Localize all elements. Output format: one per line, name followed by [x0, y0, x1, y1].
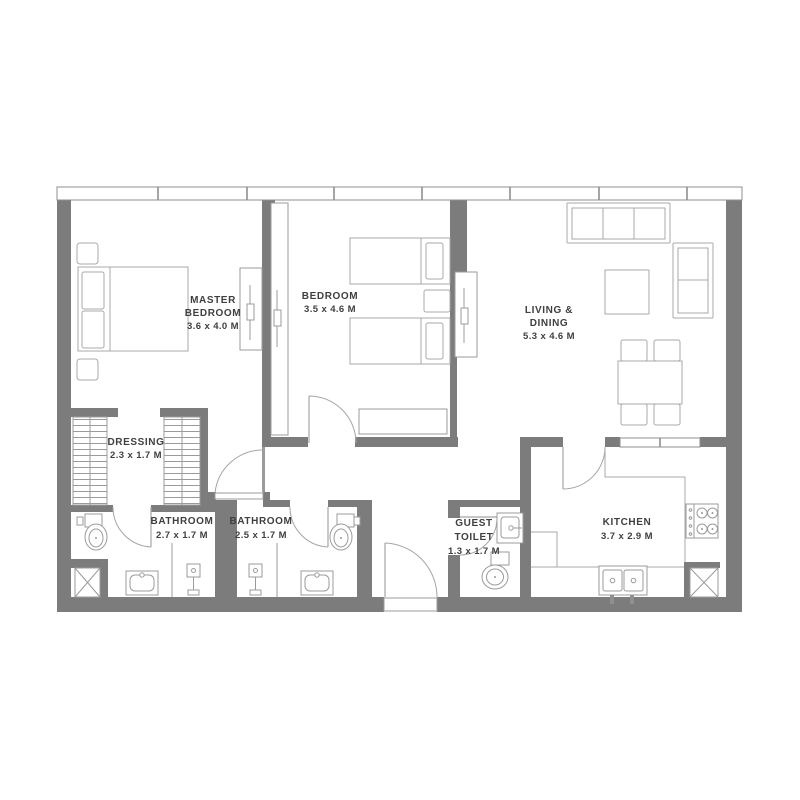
- guest-toilet-label-2: TOILET: [455, 532, 494, 543]
- toilet: [330, 514, 360, 550]
- kitchen-door: [563, 447, 605, 489]
- kitchen-counter: [531, 447, 685, 567]
- bathroom-master-dimensions: 2.7 x 1.7 M: [156, 530, 208, 541]
- service-shaft: [75, 568, 100, 597]
- hanging-closet: [359, 409, 447, 434]
- dining-chair: [621, 404, 647, 425]
- sink-tap: [610, 595, 614, 604]
- bathroom-shared-label: BATHROOM: [230, 516, 293, 527]
- guest-toilet-dimensions: 1.3 x 1.7 M: [448, 546, 500, 557]
- service-shaft: [690, 568, 718, 597]
- coffee-table: [605, 270, 649, 314]
- nightstand: [424, 290, 450, 312]
- living-dining-dimensions: 5.3 x 4.6 M: [523, 331, 575, 342]
- nightstand: [77, 359, 98, 380]
- window-band-top: [57, 187, 742, 200]
- dining-set: [618, 340, 682, 425]
- master-bedroom-label-2: BEDROOM: [185, 308, 241, 319]
- sink-tap: [630, 595, 634, 604]
- nightstand: [77, 243, 98, 264]
- bathroom-master: BATHROOM 2.7 x 1.7 M: [75, 514, 213, 597]
- shower: [249, 543, 277, 597]
- pillow: [426, 243, 443, 279]
- living-dining-label-2: DINING: [530, 318, 569, 329]
- pillow: [426, 323, 443, 359]
- dressing-room: DRESSING 2.3 x 1.7 M: [73, 417, 200, 505]
- bathroom-shared-dimensions: 2.5 x 1.7 M: [235, 530, 287, 541]
- kitchen: KITCHEN 3.7 x 2.9 M: [531, 447, 718, 604]
- facade-window-band: [57, 187, 742, 200]
- bathroom-shared-door: [290, 507, 328, 547]
- bedroom-label: BEDROOM: [302, 291, 358, 302]
- floor-plan-drawing: MASTER BEDROOM 3.6 x 4.0 M BEDROOM 3.5 x…: [0, 0, 800, 800]
- sliding-wardrobe-master: [240, 268, 262, 350]
- dressing-label: DRESSING: [107, 437, 164, 448]
- living-dining-label: LIVING &: [525, 305, 573, 316]
- vanity-sink: [301, 571, 333, 595]
- kitchen-dimensions: 3.7 x 2.9 M: [601, 531, 653, 542]
- master-bedroom-dimensions: 3.6 x 4.0 M: [187, 321, 239, 332]
- guest-toilet-label: GUEST: [455, 518, 492, 529]
- bedroom: BEDROOM 3.5 x 4.6 M: [271, 203, 477, 435]
- vanity-sink: [126, 571, 158, 595]
- shelved-wardrobe-left: [73, 417, 107, 505]
- dressing-dimensions: 2.3 x 1.7 M: [110, 450, 162, 461]
- entrance-door: [384, 543, 437, 611]
- kitchen-window: [620, 438, 700, 447]
- dining-table: [618, 361, 682, 404]
- sofa-3-seat: [567, 203, 670, 243]
- bedroom-dimensions: 3.5 x 4.6 M: [304, 304, 356, 315]
- wall-sink: [497, 513, 523, 543]
- bathroom-master-door: [113, 507, 151, 547]
- dining-chair: [654, 340, 680, 361]
- dining-chair: [654, 404, 680, 425]
- master-bedroom: MASTER BEDROOM 3.6 x 4.0 M: [77, 243, 262, 380]
- stove-4-burner: [686, 504, 718, 538]
- master-bedroom-label: MASTER: [190, 295, 236, 306]
- sliding-wardrobe-bedroom-left: [271, 203, 288, 435]
- kitchen-label: KITCHEN: [603, 517, 652, 528]
- shower: [172, 543, 200, 597]
- toilet: [482, 552, 509, 589]
- loveseat: [673, 243, 713, 318]
- bedroom-door: [309, 396, 356, 443]
- floor-plan-page: MASTER BEDROOM 3.6 x 4.0 M BEDROOM 3.5 x…: [0, 0, 800, 800]
- master-suite-door: [215, 450, 263, 499]
- bathroom-master-label: BATHROOM: [151, 516, 214, 527]
- toilet: [77, 514, 107, 550]
- pillow: [82, 311, 104, 348]
- sliding-wardrobe-bedroom-right: [455, 272, 477, 357]
- dining-chair: [621, 340, 647, 361]
- pillow: [82, 272, 104, 309]
- living-dining: LIVING & DINING 5.3 x 4.6 M: [523, 203, 713, 425]
- shelved-wardrobe-right: [164, 417, 200, 505]
- vestibule-partition: [262, 447, 265, 492]
